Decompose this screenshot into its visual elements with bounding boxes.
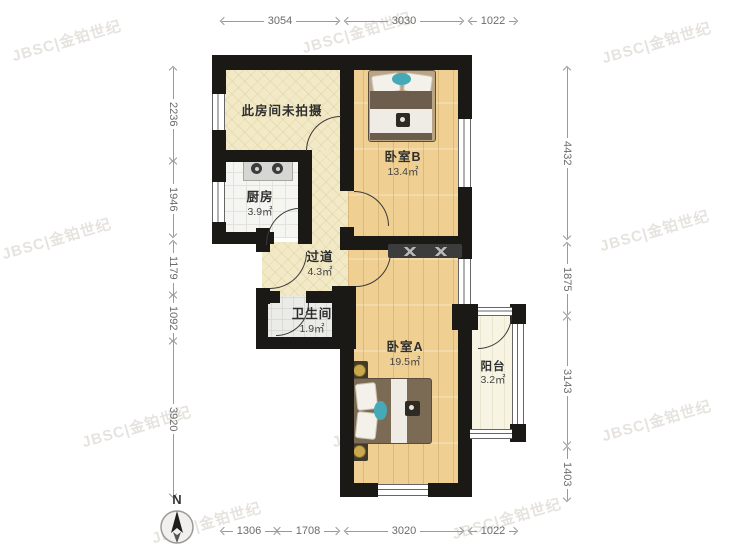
dimension-value: 1022 [481,15,505,27]
dimension-right-1: 4432 [560,68,574,238]
room-area: 3.9㎡ [230,206,290,219]
room-label-balcony: 阳台 3.2㎡ [468,360,518,388]
compass-north-label: N [154,492,200,507]
dimension-top-2: 3030 [346,14,462,28]
wall [458,63,472,119]
blanket [370,91,432,109]
room-name: 卧室B [370,150,436,166]
dimension-value: 1946 [167,187,179,211]
room-area: 13.4㎡ [370,166,436,179]
wall [510,304,526,324]
dimension-left-3: 1179 [166,242,180,294]
room-name: 厨房 [230,190,290,206]
window [470,429,512,439]
dimension-value: 3020 [392,525,416,537]
wall [340,337,354,497]
dimension-value: 1022 [481,525,505,537]
dimension-right-2: 1875 [560,244,574,314]
dimension-bottom-1: 1306 [222,524,276,538]
bed-tray [396,113,410,127]
watermark: JBSC|金铂世纪 [599,17,714,68]
dimension-bottom-3: 3020 [346,524,462,538]
room-label-bedroom-b: 卧室B 13.4㎡ [370,150,436,179]
radiator [388,244,462,258]
dimension-value: 1092 [167,306,179,330]
cushion [374,401,387,420]
wall [340,483,378,497]
wall [212,66,226,94]
window [458,259,471,304]
room-label-bedroom-a: 卧室A 19.5㎡ [372,340,438,369]
room-name: 阳台 [468,360,518,374]
dimension-bottom-4: 1022 [470,524,516,538]
room-label-bathroom: 卫生间 1.9㎡ [280,307,344,336]
dimension-value: 3143 [561,369,573,393]
dimension-left-5: 3920 [166,342,180,496]
dimension-top-3: 1022 [470,14,516,28]
room-label-unphotographed: 此房间未拍摄 [222,104,342,120]
radiator-x-icon [432,247,450,256]
watermark: JBSC|金铂世纪 [597,205,712,256]
stove [243,159,293,181]
floor-plan-page: JBSC|金铂世纪 JBSC|金铂世纪 JBSC|金铂世纪 JBSC|金铂世纪 … [0,0,740,555]
bed-bedroom-a [352,378,432,444]
burner [272,163,283,174]
dimension-value: 3030 [392,15,416,27]
room-label-hallway: 过道 4.3㎡ [290,250,350,279]
radiator-x-icon [401,247,419,256]
dimension-left-4: 1092 [166,296,180,340]
window [458,119,471,187]
dimension-left-1: 2236 [166,68,180,160]
bed-foot [370,133,432,140]
dimension-value: 1306 [237,525,261,537]
room-area: 19.5㎡ [372,356,438,369]
dimension-bottom-2: 1708 [278,524,338,538]
room-name: 卧室A [372,340,438,356]
wall [340,63,354,191]
dimension-value: 4432 [561,141,573,165]
watermark: JBSC|金铂世纪 [599,395,714,446]
dimension-right-3: 3143 [560,318,574,444]
watermark: JBSC|金铂世纪 [9,15,124,66]
wall [458,330,472,497]
dimension-value: 2236 [167,102,179,126]
watermark: JBSC|金铂世纪 [0,213,114,264]
compass: N [154,492,200,552]
dimension-value: 1403 [561,462,573,486]
bed-tray [405,401,420,416]
room-area: 3.2㎡ [468,374,518,387]
wall [212,150,306,162]
room-area: 4.3㎡ [290,266,350,279]
dimension-value: 3920 [167,407,179,431]
room-name: 卫生间 [280,307,344,323]
room-name: 此房间未拍摄 [222,104,342,120]
burner [251,163,262,174]
dimension-value: 1875 [561,267,573,291]
bed-bedroom-b [368,70,436,142]
compass-rose-icon [157,507,197,547]
dimension-right-4: 1403 [560,448,574,500]
window [212,182,225,222]
dimension-value: 1708 [296,525,320,537]
dimension-value: 1179 [167,256,179,280]
window [378,484,428,496]
cushion [392,73,411,85]
dimension-value: 3054 [268,15,292,27]
room-label-kitchen: 厨房 3.9㎡ [230,190,290,219]
room-name: 过道 [290,250,350,266]
wall [298,150,312,244]
dimension-left-2: 1946 [166,162,180,236]
wall [452,304,478,330]
wall [510,424,526,442]
room-area: 1.9㎡ [280,323,344,336]
dimension-top-1: 3054 [222,14,338,28]
